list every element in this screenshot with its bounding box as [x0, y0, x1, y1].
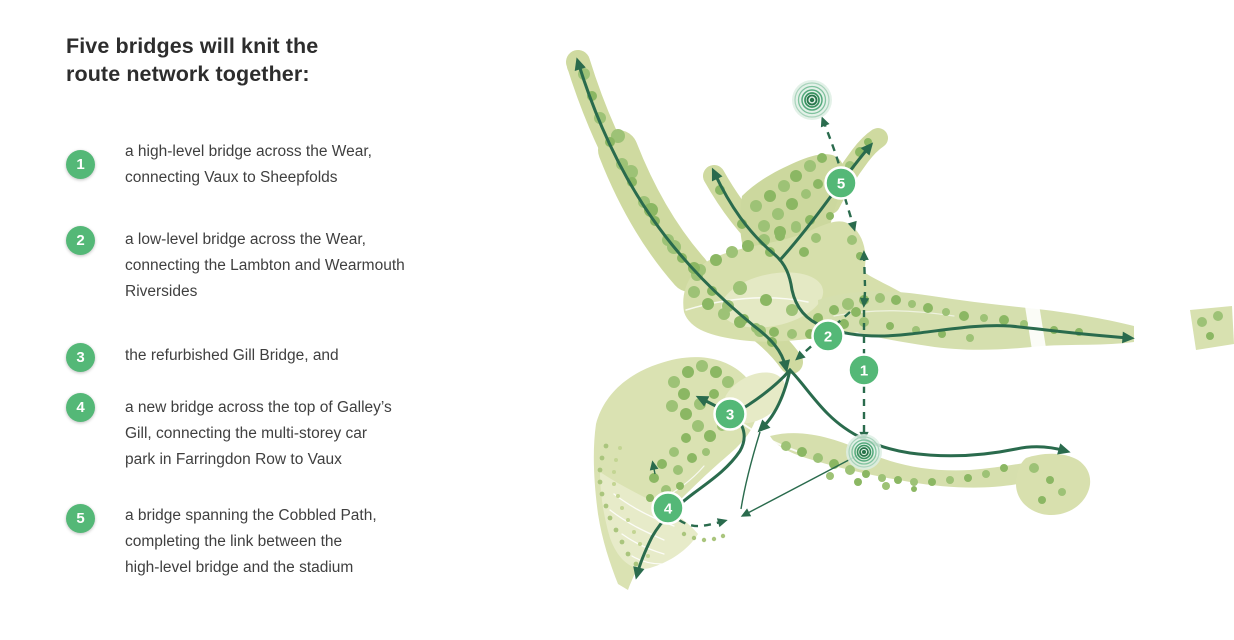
destination-target-riverside — [846, 434, 882, 470]
bridge-item-1-text: a high-level bridge across the Wear, con… — [125, 139, 465, 191]
map-marker-4: 4 — [653, 493, 684, 524]
map-marker-5: 5 — [826, 168, 857, 199]
list-number-badge-1: 1 — [66, 150, 95, 179]
five-bridges-infographic: Five bridges will knit the route network… — [0, 0, 1234, 640]
thin-link-to-gill — [744, 452, 864, 515]
route-map-illustration: 1 2 3 4 5 — [534, 0, 1234, 640]
map-marker-1: 1 — [849, 355, 880, 386]
svg-text:4: 4 — [664, 501, 673, 518]
destination-target-north — [792, 80, 832, 120]
bridge-item-4-text: a new bridge across the top of Galley’s … — [125, 395, 465, 473]
text-panel: Five bridges will knit the route network… — [0, 0, 534, 640]
map-marker-2: 2 — [813, 321, 844, 352]
svg-text:5: 5 — [837, 176, 845, 193]
bridge-item-5-text: a bridge spanning the Cobbled Path, comp… — [125, 503, 465, 581]
bridge-item-2-text: a low-level bridge across the Wear, conn… — [125, 227, 465, 305]
page-title: Five bridges will knit the route network… — [66, 32, 406, 89]
svg-text:1: 1 — [860, 363, 868, 380]
bridge-5-link-b — [864, 254, 865, 286]
list-number-badge-5: 5 — [66, 504, 95, 533]
list-number-badge-3: 3 — [66, 343, 95, 372]
svg-text:2: 2 — [824, 329, 832, 346]
svg-text:3: 3 — [726, 407, 734, 424]
list-number-badge-2: 2 — [66, 226, 95, 255]
list-number-badge-4: 4 — [66, 393, 95, 422]
bridge-item-3-text: the refurbished Gill Bridge, and — [125, 343, 465, 369]
map-marker-3: 3 — [715, 399, 746, 430]
